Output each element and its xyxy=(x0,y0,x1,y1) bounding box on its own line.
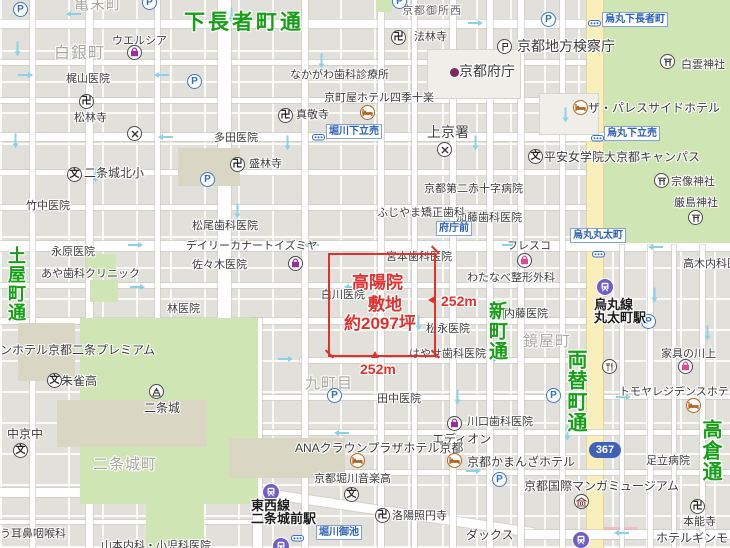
hotel-icon[interactable] xyxy=(350,453,366,469)
park-area xyxy=(90,280,118,302)
poi-label[interactable]: 宗像神社 xyxy=(671,176,715,188)
poi-label[interactable]: 真敬寺 xyxy=(296,109,329,121)
poi-label[interactable]: 足立病院 xyxy=(646,455,690,467)
road xyxy=(30,0,35,548)
poi-label[interactable]: 白雲神社 xyxy=(681,59,725,71)
bus-icon[interactable] xyxy=(291,530,307,546)
oneway-arrow xyxy=(654,288,656,299)
temple-icon[interactable]: 卍 xyxy=(690,499,706,515)
poi-label[interactable]: 高木内科医院 xyxy=(683,258,730,270)
gov-icon[interactable] xyxy=(447,65,463,81)
poi-label[interactable]: 中京中 xyxy=(7,428,43,441)
annotation-dimension-arrow xyxy=(371,351,379,358)
court-icon[interactable] xyxy=(497,39,513,55)
poi-label[interactable]: 佐々木医院 xyxy=(192,259,247,271)
shrine-icon[interactable] xyxy=(660,54,676,70)
poi-label[interactable]: 松林寺 xyxy=(74,112,107,124)
poi-label[interactable]: トモヤレジデンスホテル京都 xyxy=(619,386,730,398)
poi-label[interactable]: 京都国際マンガミュージアム xyxy=(524,480,679,493)
oneway-arrow xyxy=(618,532,629,534)
poi-label[interactable]: ふじやま矯正歯科 xyxy=(377,207,465,219)
parking-icon[interactable]: P xyxy=(13,2,29,18)
poi-label[interactable]: 朱雀高 xyxy=(61,375,97,388)
subway-icon[interactable] xyxy=(597,279,613,295)
poi-label[interactable]: 京都第二赤十字病院 xyxy=(424,183,523,195)
bus-icon[interactable] xyxy=(592,246,608,262)
school-icon[interactable]: 文 xyxy=(528,149,544,165)
poi-label[interactable]: 洛陽照円寺 xyxy=(392,510,447,522)
bus-stop-label[interactable]: 烏丸下立売 xyxy=(604,126,660,141)
oneway-arrow xyxy=(338,432,349,434)
oneway-arrow xyxy=(158,74,169,76)
shop-icon[interactable] xyxy=(447,416,463,432)
castle-icon[interactable] xyxy=(149,384,165,400)
poi-label[interactable]: ンホテル京都二条プレミアム xyxy=(0,344,155,357)
oneway-arrow xyxy=(475,136,477,147)
oneway-arrow xyxy=(278,358,289,360)
school-icon[interactable]: 文 xyxy=(13,443,29,459)
station-label[interactable]: 烏丸線丸太町駅 xyxy=(594,298,646,324)
museum-icon[interactable] xyxy=(574,494,590,510)
road xyxy=(155,0,160,318)
poi-label[interactable]: 厳島神社 xyxy=(674,197,718,209)
oneway-arrow xyxy=(162,136,173,138)
shop-pink-icon[interactable] xyxy=(678,359,694,375)
poi-label[interactable]: ダックス xyxy=(466,529,514,542)
temple-icon[interactable]: 卍 xyxy=(375,508,391,524)
bus-stop-label[interactable]: 烏丸丸太町 xyxy=(570,228,626,243)
oneway-arrow xyxy=(287,136,289,147)
bus-stop-label[interactable]: 府庁前 xyxy=(436,221,472,236)
shrine-icon[interactable] xyxy=(654,173,670,189)
poi-label[interactable]: 内藤医院 xyxy=(504,308,548,320)
road xyxy=(0,520,253,524)
bus-stop-label[interactable]: 堀川御池 xyxy=(316,525,362,540)
parking-icon[interactable]: P xyxy=(546,388,562,404)
temple-icon[interactable]: 卍 xyxy=(79,94,95,110)
poi-label[interactable]: 松尾歯科医院 xyxy=(192,220,258,232)
subway-icon[interactable] xyxy=(573,532,589,548)
poi-label[interactable]: 本能寺 xyxy=(683,516,716,528)
town-label: 京都御所西 xyxy=(402,2,462,18)
poi-label[interactable]: 京都地方検察庁 xyxy=(517,39,615,54)
shop-pink-icon[interactable] xyxy=(517,253,533,269)
poi-label[interactable]: ザ・パレスサイドホテル xyxy=(588,102,720,115)
hotel-icon[interactable] xyxy=(447,453,463,469)
poi-label[interactable]: 田中医院 xyxy=(377,393,421,405)
road-name-label: 高倉通 xyxy=(696,419,725,482)
oneway-arrow xyxy=(468,22,479,24)
parking-icon[interactable]: P xyxy=(327,388,343,404)
town-label: 亀末町 xyxy=(74,0,122,14)
poi-label[interactable]: 盛林寺 xyxy=(249,158,282,170)
poi-label[interactable]: デイリーカナートイズミヤ xyxy=(186,240,318,252)
oneway-arrow xyxy=(652,246,663,248)
route-badge-367: 367 xyxy=(589,442,621,458)
poi-label[interactable]: 多田医院 xyxy=(214,132,258,144)
town-label: 白銀町 xyxy=(54,39,105,63)
parking-icon[interactable]: P xyxy=(492,472,508,488)
town-label: 鏡屋町 xyxy=(523,330,571,351)
bus-stop-label[interactable]: 烏丸下長者町 xyxy=(602,12,668,27)
shrine-icon[interactable] xyxy=(688,210,704,226)
oneway-arrow xyxy=(18,74,29,76)
oneway-arrow xyxy=(17,42,19,53)
shop-icon[interactable] xyxy=(127,45,143,61)
restaurant-icon[interactable] xyxy=(602,359,618,375)
major-road xyxy=(586,0,604,548)
police-icon[interactable] xyxy=(437,142,453,158)
road-name-label: 下長者町通 xyxy=(184,6,304,36)
poi-label[interactable]: フレスコ xyxy=(507,240,551,252)
shop-icon[interactable] xyxy=(288,256,304,272)
school-icon[interactable]: 文 xyxy=(344,487,360,503)
poi-label[interactable]: 京都堀川音楽高 xyxy=(314,473,391,485)
poi-label[interactable]: ANAクラウンプラザホテル京都 xyxy=(295,442,463,455)
oneway-arrow xyxy=(707,326,709,337)
poi-label[interactable]: 永原医院 xyxy=(51,246,95,258)
oneway-arrow xyxy=(457,390,459,401)
poi-label[interactable]: あや歯科クリニック xyxy=(41,268,140,280)
road-name-label: 両替町通 xyxy=(561,349,590,433)
school-icon[interactable]: 文 xyxy=(47,373,63,389)
poi-label[interactable]: 京都かまんざホテル xyxy=(467,456,575,469)
oneway-arrow xyxy=(15,134,17,145)
hotel-icon[interactable] xyxy=(686,398,702,414)
annotation-area: 約2097坪 xyxy=(344,309,416,334)
town-label: 二条城町 xyxy=(93,453,157,474)
parking-icon[interactable]: P xyxy=(200,172,216,188)
poi-label[interactable]: ホテルギンモンド xyxy=(656,532,730,545)
annotation-dimension-arrow xyxy=(428,296,435,304)
poi-label[interactable]: 竹中医院 xyxy=(26,200,70,212)
poi-label[interactable]: 川口歯科医院 xyxy=(467,416,533,428)
hotel-icon[interactable] xyxy=(360,105,376,121)
oneway-arrow xyxy=(466,470,477,472)
map-canvas[interactable]: 烏丸線丸太町駅東西線二条城前駅堀川御池烏丸丸太町府庁前烏丸下立売堀川下立売烏丸下… xyxy=(0,0,730,548)
oneway-arrow xyxy=(237,204,239,215)
building-block xyxy=(57,400,207,447)
hotel-icon[interactable] xyxy=(573,100,589,116)
poi-label[interactable]: 京町屋ホテル四季十楽 xyxy=(324,92,434,104)
annotation-dim-bottom: 252m xyxy=(360,361,396,377)
poi-label[interactable]: 梶山医院 xyxy=(66,73,110,85)
oneway-arrow xyxy=(128,244,139,246)
oneway-arrow xyxy=(130,286,141,288)
poi-label[interactable]: 上京署 xyxy=(427,125,469,140)
parking-icon[interactable]: P xyxy=(142,0,158,11)
temple-icon[interactable]: 卍 xyxy=(230,157,246,173)
poi-label[interactable]: 京都府庁 xyxy=(459,64,515,79)
poi-label[interactable]: 二条城 xyxy=(144,402,180,415)
school-icon[interactable]: 文 xyxy=(67,167,83,183)
bus-stop-label[interactable]: 堀川下立売 xyxy=(326,124,382,139)
poi-label[interactable]: 平安女学院大京都キャンパス xyxy=(544,151,700,164)
oneway-arrow xyxy=(565,108,567,119)
poi-label[interactable]: 林医院 xyxy=(167,303,200,315)
poi-label[interactable]: 法林寺 xyxy=(414,31,447,43)
temple-icon[interactable]: 卍 xyxy=(391,30,407,46)
annotation-dim-right: 252m xyxy=(441,293,477,309)
police-icon[interactable] xyxy=(127,126,143,142)
road-name-label: 土屋町通 xyxy=(3,246,29,322)
temple-icon[interactable]: 卍 xyxy=(278,108,294,124)
poi-label[interactable]: 山本内科・小児科医院 xyxy=(101,540,211,548)
parking-icon[interactable]: P xyxy=(541,12,557,28)
subway-icon[interactable] xyxy=(273,538,289,548)
parking-icon[interactable]: P xyxy=(392,0,408,10)
poi-label[interactable]: う耳鼻咽喉科 xyxy=(0,528,66,540)
poi-label[interactable]: わたなべ整形外科 xyxy=(467,272,555,284)
station-label[interactable]: 東西線二条城前駅 xyxy=(251,499,316,525)
parking-icon[interactable]: P xyxy=(187,74,203,90)
poi-label[interactable]: 二条城北小 xyxy=(84,167,144,180)
poi-label[interactable]: なかがわ歯科診療所 xyxy=(290,69,389,81)
park-area xyxy=(376,0,392,12)
oneway-arrow xyxy=(321,54,323,65)
